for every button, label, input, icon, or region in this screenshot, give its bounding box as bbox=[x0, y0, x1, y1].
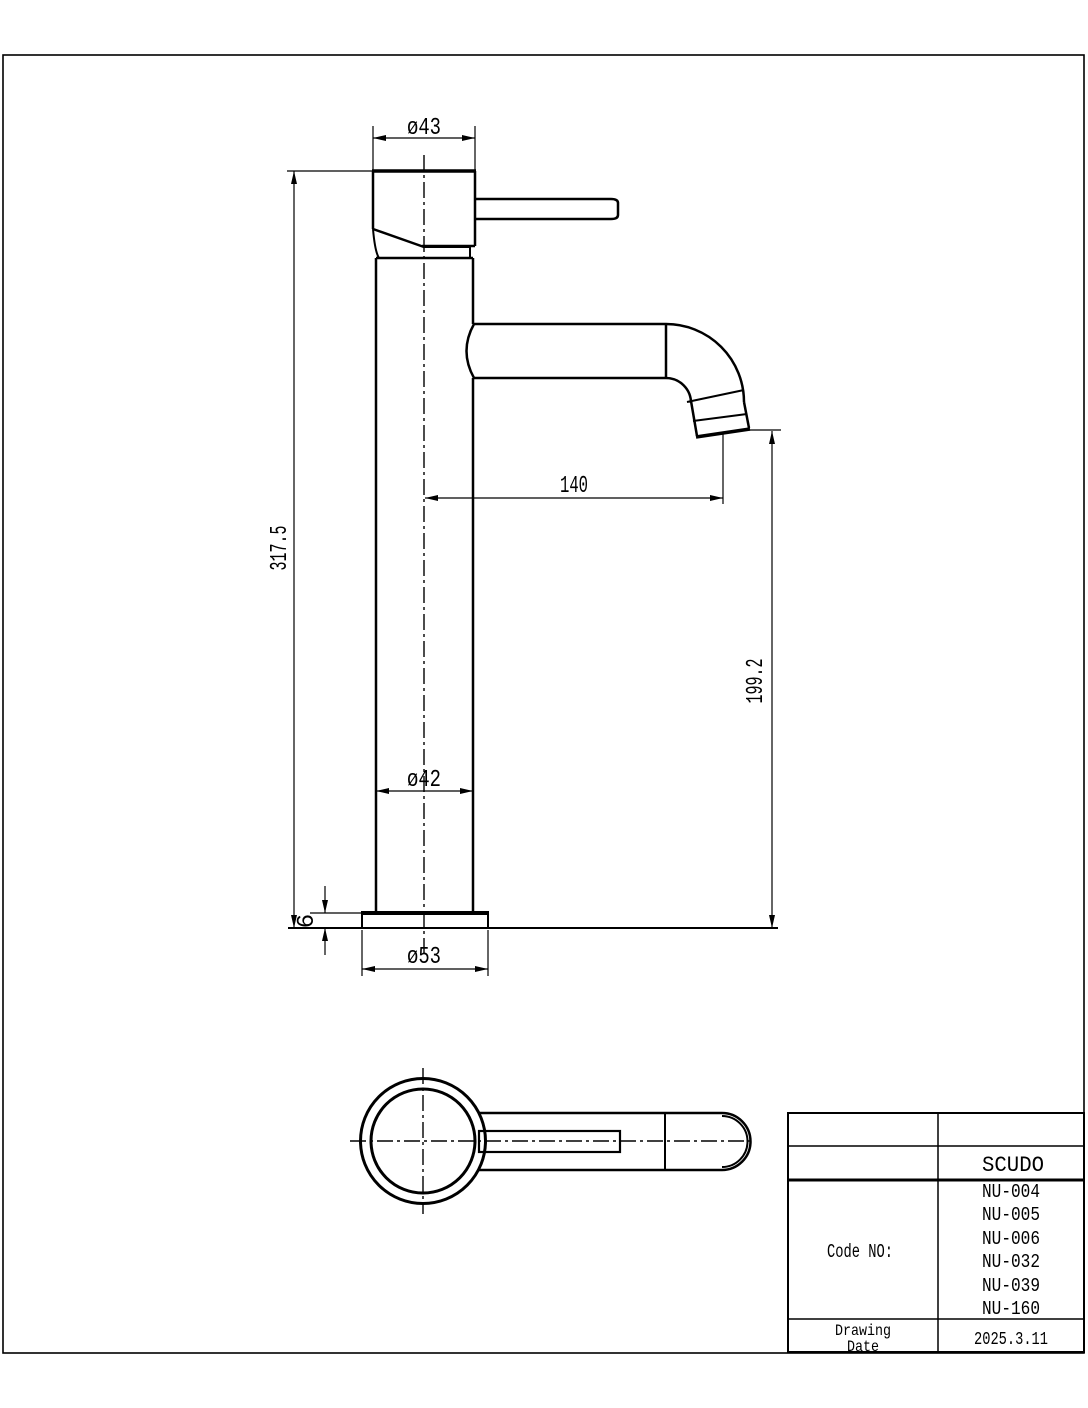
faucet-outline bbox=[288, 171, 778, 928]
title-block: SCUDO Code NO: NU-004 NU-005 NU-006 NU-0… bbox=[788, 1113, 1084, 1356]
top-view bbox=[350, 1068, 755, 1214]
drawing-sheet: ø43 317.5 140 199.2 bbox=[0, 0, 1088, 1408]
spout bbox=[467, 324, 751, 437]
cad-drawing: ø43 317.5 140 199.2 bbox=[0, 0, 1088, 1408]
front-view: ø43 317.5 140 199.2 bbox=[267, 115, 781, 976]
dim-base-diameter-text: ø53 bbox=[407, 944, 441, 971]
dimension-outlet-height: 199.2 bbox=[743, 430, 781, 928]
brand-name: SCUDO bbox=[982, 1153, 1044, 1178]
code-item: NU-039 bbox=[982, 1275, 1040, 1297]
dim-spout-reach-text: 140 bbox=[560, 473, 588, 500]
dim-overall-height-text: 317.5 bbox=[267, 526, 294, 571]
dimension-overall-height: 317.5 bbox=[267, 171, 373, 928]
base-flange bbox=[361, 913, 489, 927]
dimension-base-thickness: 6 bbox=[294, 886, 362, 955]
code-label: Code NO: bbox=[827, 1241, 893, 1263]
dimension-spout-reach: 140 bbox=[425, 433, 723, 504]
code-item: NU-032 bbox=[982, 1251, 1040, 1273]
dimension-base-diameter: ø53 bbox=[362, 930, 488, 976]
code-list: NU-004 NU-005 NU-006 NU-032 NU-039 NU-16… bbox=[982, 1181, 1040, 1320]
dim-base-thickness-text: 6 bbox=[294, 914, 321, 928]
code-item: NU-160 bbox=[982, 1298, 1040, 1320]
dim-body-diameter-text: ø42 bbox=[407, 767, 441, 794]
drawing-date: 2025.3.11 bbox=[974, 1330, 1048, 1350]
dim-top-diameter-text: ø43 bbox=[407, 115, 441, 142]
dim-outlet-height-text: 199.2 bbox=[743, 659, 770, 704]
dimension-body-diameter: ø42 bbox=[376, 767, 473, 794]
handle-front bbox=[475, 199, 618, 219]
sheet-border bbox=[3, 55, 1084, 1353]
code-item: NU-004 bbox=[982, 1181, 1040, 1203]
code-item: NU-005 bbox=[982, 1204, 1040, 1226]
code-item: NU-006 bbox=[982, 1228, 1040, 1250]
date-label-line2: Date bbox=[847, 1338, 879, 1356]
